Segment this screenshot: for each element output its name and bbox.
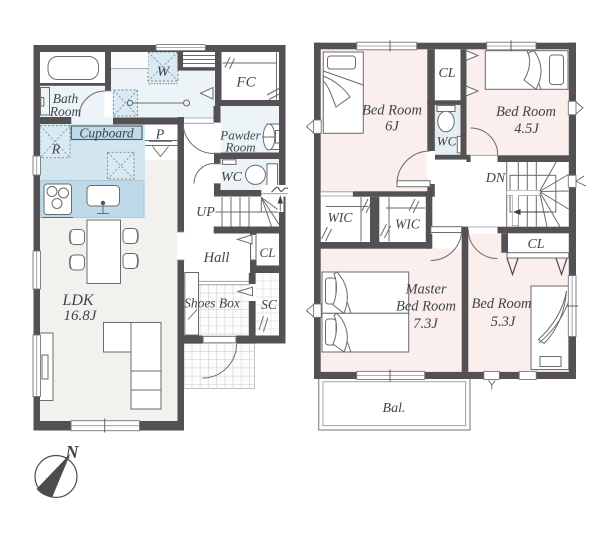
svg-text:Bed Room: Bed Room	[362, 103, 422, 119]
svg-text:CL: CL	[527, 237, 544, 252]
svg-text:Shoes Box: Shoes Box	[184, 296, 240, 311]
svg-text:Bed Room: Bed Room	[396, 299, 456, 315]
svg-text:Bed Room: Bed Room	[496, 104, 556, 120]
svg-text:W: W	[157, 64, 171, 80]
svg-text:Master: Master	[404, 281, 446, 297]
svg-text:Hall: Hall	[203, 250, 230, 266]
svg-text:CL: CL	[260, 245, 276, 260]
svg-text:Cupboard: Cupboard	[79, 125, 134, 140]
svg-text:Bed Room: Bed Room	[472, 296, 532, 312]
svg-text:7.3J: 7.3J	[413, 316, 438, 332]
svg-text:FC: FC	[235, 75, 256, 91]
svg-text:Room: Room	[49, 104, 82, 119]
svg-text:WC: WC	[221, 170, 243, 185]
svg-text:DN: DN	[485, 171, 506, 186]
svg-text:WIC: WIC	[328, 210, 354, 225]
svg-text:P: P	[155, 128, 165, 143]
svg-text:SC: SC	[261, 297, 278, 312]
svg-text:16.8J: 16.8J	[64, 308, 98, 324]
svg-text:CL: CL	[438, 66, 455, 81]
svg-text:WC: WC	[437, 134, 457, 149]
svg-text:UP: UP	[196, 205, 215, 220]
svg-text:6J: 6J	[385, 119, 399, 135]
svg-text:Room: Room	[224, 140, 255, 155]
svg-text:R: R	[51, 143, 61, 158]
svg-text:N: N	[65, 442, 80, 462]
svg-text:WIC: WIC	[395, 217, 421, 232]
svg-text:LDK: LDK	[61, 292, 94, 309]
svg-text:Bal.: Bal.	[383, 401, 406, 416]
svg-text:5.3J: 5.3J	[491, 314, 516, 330]
svg-text:4.5J: 4.5J	[514, 121, 539, 137]
